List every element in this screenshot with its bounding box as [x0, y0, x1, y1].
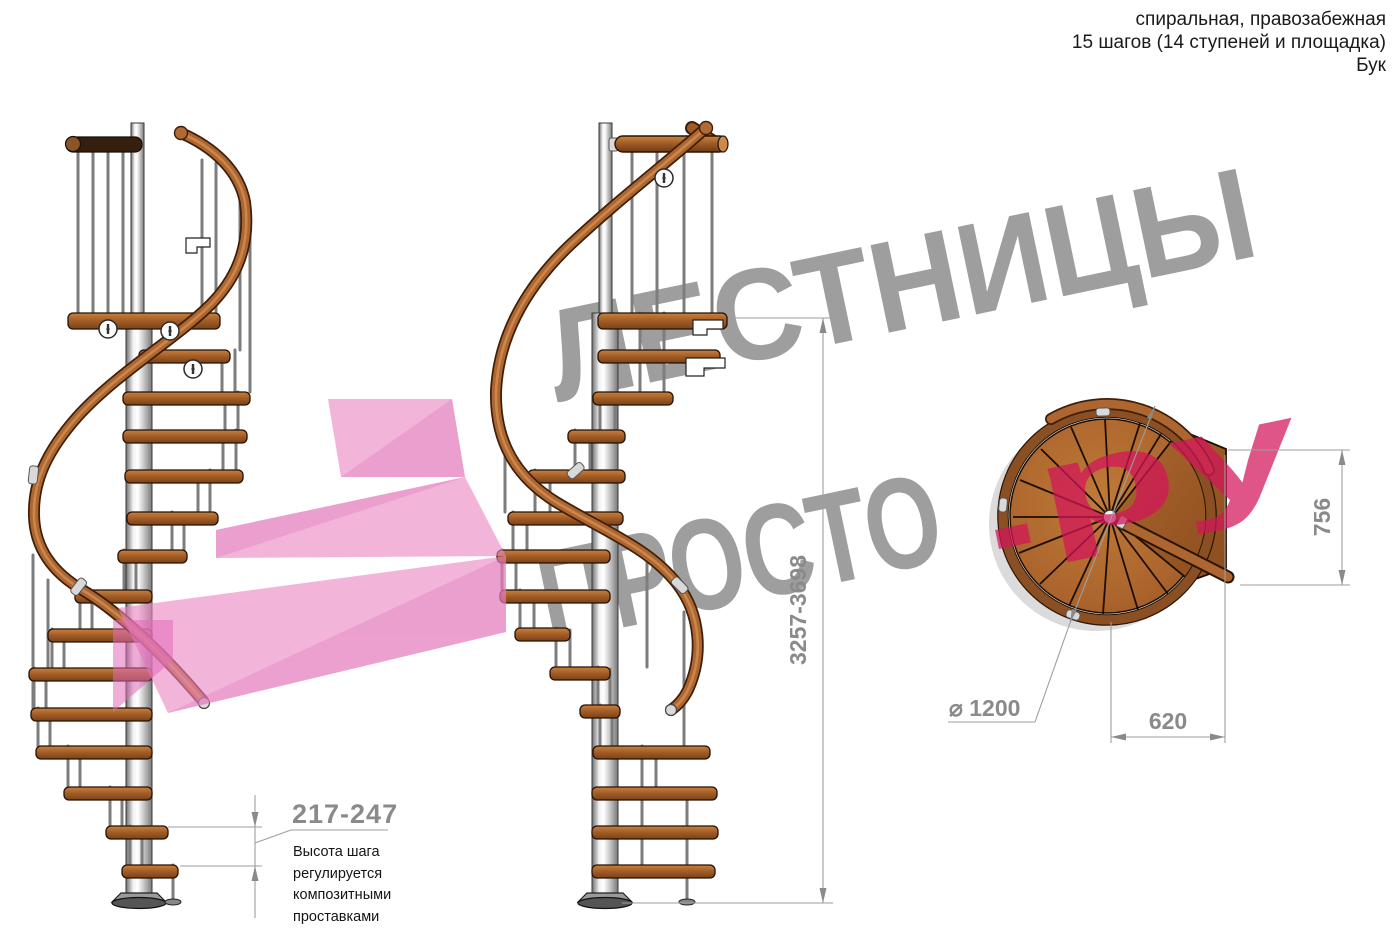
- step-bracket: [186, 238, 210, 253]
- drawing-canvas: ЛЕСТНИЦЫ ПРОСТО .ру: [0, 0, 1400, 951]
- staircase-side-view-1: [28, 123, 250, 909]
- pole-base-flange: [112, 898, 166, 909]
- watermark-word-2: ПРОСТО .ру: [525, 369, 1313, 670]
- landing-depth-label: 756: [1309, 498, 1335, 536]
- staircase-drawing: ЛЕСТНИЦЫ ПРОСТО .ру: [0, 0, 1400, 951]
- landing-handrail: [66, 137, 143, 153]
- composite-spacers: [655, 169, 673, 187]
- landing-width-label: 620: [1149, 708, 1187, 734]
- total-height-label: 3257-3698: [785, 555, 811, 665]
- spec-line-type: спиральная, правозабежная: [1072, 8, 1386, 31]
- diameter-label: ⌀ 1200: [949, 695, 1020, 721]
- spec-line-steps: 15 шагов (14 ступеней и площадка): [1072, 31, 1386, 54]
- spec-header: спиральная, правозабежная 15 шагов (14 с…: [1072, 8, 1386, 77]
- spec-line-material: Бук: [1072, 54, 1386, 77]
- step-height-label: 217-247: [292, 799, 398, 829]
- step-height-note: Высота шага регулируется композитными пр…: [293, 842, 391, 928]
- rail-connector-sleeve: [28, 466, 39, 485]
